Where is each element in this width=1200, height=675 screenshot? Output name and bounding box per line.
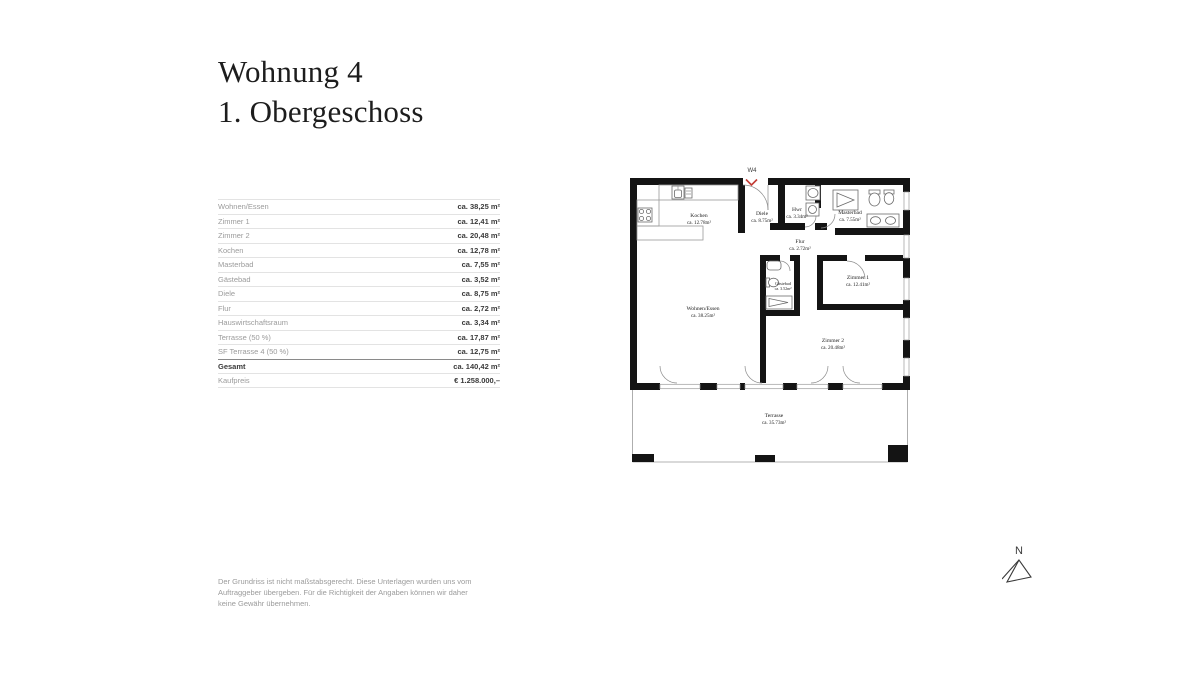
- floor-plan-drawing: W4: [630, 158, 910, 468]
- sink-icon: [672, 186, 684, 199]
- row-value: ca. 38,25 m²: [457, 202, 500, 211]
- room-area: ca. 38.25m²: [691, 313, 715, 319]
- shower-icon: [766, 296, 792, 309]
- total-label: Gesamt: [218, 362, 246, 371]
- row-label: Hauswirtschaftsraum: [218, 318, 288, 327]
- table-row: Gästebadca. 3,52 m²: [218, 272, 500, 287]
- row-label: Masterbad: [218, 260, 253, 269]
- table-row: SF Terrasse 4 (50 %)ca. 12,75 m²: [218, 344, 500, 359]
- table-row: Masterbadca. 7,55 m²: [218, 257, 500, 272]
- cooktop-icon: [638, 208, 652, 222]
- row-label: SF Terrasse 4 (50 %): [218, 347, 289, 356]
- room-labels: Kochen ca. 12.78m² Diele ca. 8.75m² Hwr …: [686, 207, 870, 426]
- page-title-line2: 1. Obergeschoss: [218, 92, 424, 132]
- disclaimer-text: Der Grundriss ist nicht maßstabsgerecht.…: [218, 576, 486, 609]
- washbasin-icon: [767, 261, 781, 270]
- row-value: ca. 17,87 m²: [457, 333, 500, 342]
- row-label: Gästebad: [218, 275, 251, 284]
- washbasin-icon: [806, 186, 820, 200]
- room-name: Hwr: [792, 207, 802, 213]
- north-arrow-icon: [1002, 545, 1036, 591]
- row-value: ca. 12,78 m²: [457, 246, 500, 255]
- table-row: Wohnen/Essenca. 38,25 m²: [218, 199, 500, 214]
- north-compass: N: [1002, 545, 1036, 591]
- total-value: ca. 140,42 m²: [453, 362, 500, 371]
- row-label: Kochen: [218, 246, 243, 255]
- room-area: ca. 12.78m²: [687, 220, 711, 226]
- row-label: Zimmer 1: [218, 217, 250, 226]
- area-table: Wohnen/Essenca. 38,25 m² Zimmer 1ca. 12,…: [218, 199, 500, 388]
- washing-machine-icon: [806, 203, 819, 216]
- room-name: Wohnen/Essen: [686, 306, 719, 312]
- double-washbasin-icon: [867, 214, 899, 227]
- room-name: Masterbad: [838, 210, 862, 216]
- room-name: Terrasse: [765, 413, 784, 419]
- room-area: ca. 2.72m²: [789, 246, 811, 252]
- room-area: ca. 20.48m²: [821, 345, 845, 351]
- price-label: Kaufpreis: [218, 376, 250, 385]
- page-title-line1: Wohnung 4: [218, 52, 424, 92]
- room-name: Diele: [756, 211, 769, 217]
- room-name: Kochen: [690, 213, 708, 219]
- table-row: Zimmer 2ca. 20,48 m²: [218, 228, 500, 243]
- row-label: Wohnen/Essen: [218, 202, 269, 211]
- shower-icon: [833, 190, 858, 210]
- terrace-door-window: [660, 384, 882, 388]
- table-row-price: Kaufpreis€ 1.258.000,–: [218, 373, 500, 388]
- row-value: ca. 12,75 m²: [457, 347, 500, 356]
- room-area: ca. 3.34m²: [786, 214, 808, 220]
- table-row: Hauswirtschaftsraumca. 3,34 m²: [218, 315, 500, 330]
- row-value: ca. 7,55 m²: [462, 260, 500, 269]
- price-value: € 1.258.000,–: [454, 376, 500, 385]
- terrace-outline: [632, 390, 908, 462]
- table-row: Terrasse (50 %)ca. 17,87 m²: [218, 330, 500, 345]
- kitchen-counter: [637, 185, 738, 240]
- table-row: Kochenca. 12,78 m²: [218, 243, 500, 258]
- unit-label: W4: [748, 168, 758, 174]
- row-value: ca. 8,75 m²: [462, 289, 500, 298]
- room-area: ca. 7.55m²: [839, 217, 861, 223]
- entrance-marker-icon: [746, 180, 757, 186]
- table-row-total: Gesamtca. 140,42 m²: [218, 359, 500, 374]
- room-name: Flur: [795, 239, 804, 245]
- table-row: Zimmer 1ca. 12,41 m²: [218, 214, 500, 229]
- dishwasher-icon: [685, 188, 692, 198]
- page-title: Wohnung 4 1. Obergeschoss: [218, 52, 424, 132]
- row-value: ca. 12,41 m²: [457, 217, 500, 226]
- room-area: ca. 35.73m²: [762, 420, 786, 426]
- row-value: ca. 3,52 m²: [462, 275, 500, 284]
- brochure-page: Wohnung 4 1. Obergeschoss Wohnen/Essenca…: [0, 0, 1200, 675]
- room-name: Zimmer 1: [847, 275, 869, 281]
- table-row: Flurca. 2,72 m²: [218, 301, 500, 316]
- room-area: ca. 8.75m²: [751, 218, 773, 224]
- room-name: Zimmer 2: [822, 338, 844, 344]
- row-value: ca. 2,72 m²: [462, 304, 500, 313]
- room-area: ca. 12.41m²: [846, 282, 870, 288]
- bidet-icon: [884, 190, 894, 204]
- row-label: Terrasse (50 %): [218, 333, 271, 342]
- room-area: ca. 3.52m²: [775, 286, 793, 291]
- table-row: Dieleca. 8,75 m²: [218, 286, 500, 301]
- toilet-icon: [869, 190, 880, 206]
- row-value: ca. 3,34 m²: [462, 318, 500, 327]
- row-label: Flur: [218, 304, 231, 313]
- row-label: Zimmer 2: [218, 231, 250, 240]
- floor-plan: W4: [630, 158, 910, 468]
- row-label: Diele: [218, 289, 235, 298]
- row-value: ca. 20,48 m²: [457, 231, 500, 240]
